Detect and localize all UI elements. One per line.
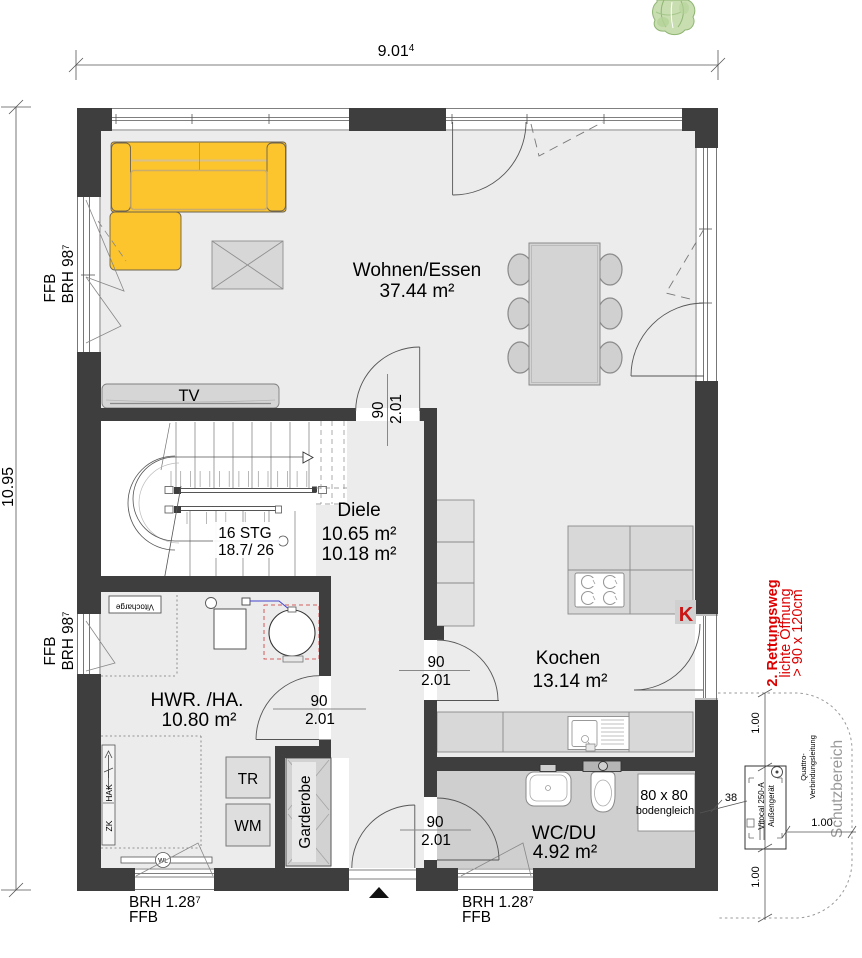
svg-text:10.65 m²: 10.65 m²	[322, 524, 397, 545]
svg-text:10.80 m²: 10.80 m²	[162, 710, 237, 731]
svg-text:Verbindungsleitung: Verbindungsleitung	[808, 735, 817, 799]
svg-text:2.01: 2.01	[421, 832, 451, 849]
svg-text:90: 90	[426, 814, 443, 831]
svg-text:FFB: FFB	[42, 274, 59, 303]
svg-text:FFB: FFB	[129, 909, 158, 926]
svg-text:WC/DU: WC/DU	[532, 823, 596, 844]
svg-text:1.00: 1.00	[750, 866, 762, 887]
svg-text:Garderobe: Garderobe	[297, 775, 314, 848]
svg-text:Diele: Diele	[337, 500, 380, 521]
svg-text:> 90 x 120cm: > 90 x 120cm	[790, 589, 806, 676]
svg-text:FFB: FFB	[42, 637, 59, 666]
svg-text:4.92 m²: 4.92 m²	[533, 842, 597, 863]
svg-text:9.014: 9.014	[378, 43, 415, 60]
svg-text:2.01: 2.01	[305, 711, 335, 728]
svg-text:16 STG: 16 STG	[218, 525, 271, 542]
svg-text:1.00: 1.00	[750, 712, 762, 733]
svg-text:HWR. /HA.: HWR. /HA.	[151, 690, 244, 711]
svg-text:Vitocharge: Vitocharge	[115, 603, 154, 612]
svg-text:80 x 80: 80 x 80	[640, 788, 688, 804]
svg-text:HAK: HAK	[104, 784, 114, 802]
svg-text:Außengerät: Außengerät	[767, 784, 776, 827]
svg-text:18.7/ 26: 18.7/ 26	[218, 542, 274, 559]
svg-text:10.95: 10.95	[0, 467, 17, 507]
svg-text:10.18 m²: 10.18 m²	[322, 544, 397, 565]
svg-text:bodengleich: bodengleich	[636, 805, 694, 817]
svg-text:90: 90	[310, 693, 327, 710]
svg-text:BRH 987: BRH 987	[60, 612, 77, 671]
svg-text:K: K	[679, 604, 694, 626]
svg-text:FFB: FFB	[462, 909, 491, 926]
svg-text:BRH 987: BRH 987	[60, 245, 77, 304]
svg-text:Wohnen/Essen: Wohnen/Essen	[353, 260, 482, 281]
svg-text:2.01: 2.01	[388, 394, 405, 424]
svg-text:90: 90	[370, 401, 387, 418]
svg-text:2.01: 2.01	[421, 672, 451, 689]
svg-text:ZK: ZK	[104, 820, 114, 831]
svg-text:WM: WM	[234, 818, 261, 835]
svg-text:1.00: 1.00	[811, 817, 832, 829]
svg-text:37.44 m²: 37.44 m²	[380, 281, 455, 302]
svg-text:TV: TV	[178, 387, 199, 405]
svg-text:TR: TR	[238, 771, 258, 788]
svg-text:90: 90	[427, 654, 444, 671]
svg-text:38: 38	[725, 792, 737, 804]
svg-text:Quattro-: Quattro-	[799, 753, 808, 781]
svg-text:Kochen: Kochen	[536, 648, 600, 669]
svg-text:13.14 m²: 13.14 m²	[533, 671, 608, 692]
